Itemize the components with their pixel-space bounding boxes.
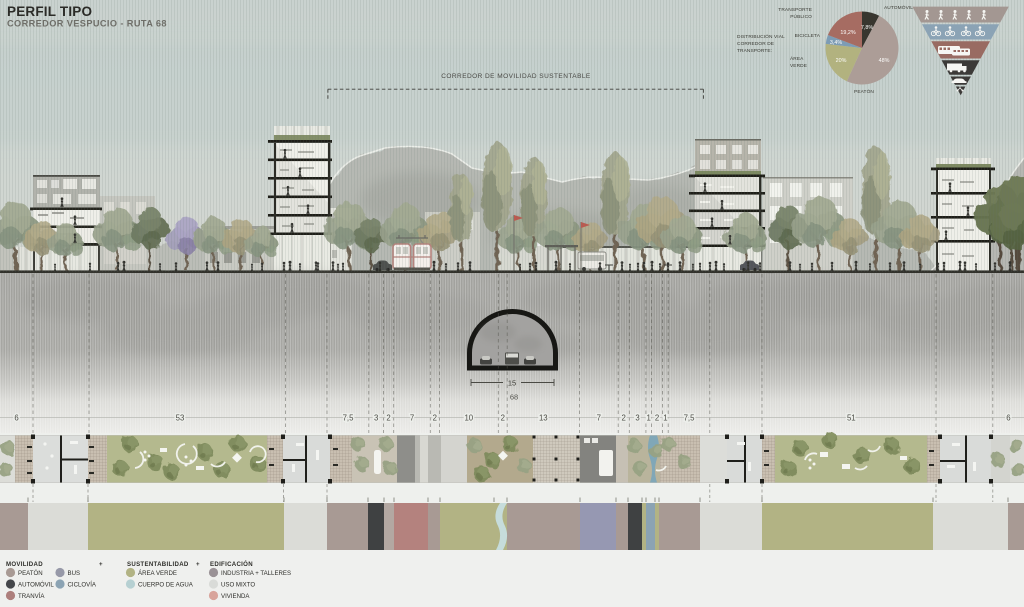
- svg-text:CORREDOR DE: CORREDOR DE: [737, 41, 774, 47]
- svg-text:ÁREA VERDE: ÁREA VERDE: [138, 570, 177, 577]
- svg-text:SUSTENTABILIDAD: SUSTENTABILIDAD: [127, 561, 189, 568]
- svg-text:51: 51: [847, 414, 856, 423]
- svg-text:15: 15: [508, 379, 516, 388]
- svg-text:CORREDOR VESPUCIO - RUTA 68: CORREDOR VESPUCIO - RUTA 68: [7, 19, 167, 29]
- svg-text:DISTRIBUCIÓN VIAL: DISTRIBUCIÓN VIAL: [737, 33, 785, 40]
- svg-text:7: 7: [410, 414, 414, 423]
- svg-text:PEATÓN: PEATÓN: [18, 570, 43, 577]
- svg-text:BICICLETA: BICICLETA: [795, 33, 821, 39]
- svg-text:EDIFICACIÓN: EDIFICACIÓN: [210, 560, 253, 568]
- svg-text:BUS: BUS: [68, 570, 81, 577]
- svg-text:48%: 48%: [879, 58, 890, 64]
- svg-text:6: 6: [1006, 414, 1010, 423]
- svg-text:CUERPO DE AGUA: CUERPO DE AGUA: [138, 582, 194, 589]
- svg-text:VIVIENDA: VIVIENDA: [221, 593, 250, 600]
- svg-text:7,5: 7,5: [684, 414, 696, 423]
- svg-text:PEATÓN: PEATÓN: [854, 88, 874, 95]
- svg-text:MOVILIDAD: MOVILIDAD: [6, 561, 43, 568]
- svg-text:2: 2: [655, 414, 659, 423]
- svg-text:PÚBLICO: PÚBLICO: [790, 13, 812, 20]
- svg-text:INDUSTRIA + TALLERES: INDUSTRIA + TALLERES: [221, 570, 291, 577]
- svg-text:19,2%: 19,2%: [840, 30, 855, 36]
- svg-text:68: 68: [510, 393, 518, 402]
- svg-text:2: 2: [386, 414, 390, 423]
- svg-text:CORREDOR DE MOVILIDAD SUSTENTA: CORREDOR DE MOVILIDAD SUSTENTABLE: [441, 73, 591, 80]
- svg-text:7,5: 7,5: [343, 414, 355, 423]
- svg-text:TRANSPORTE: TRANSPORTE: [778, 7, 812, 13]
- svg-text:2: 2: [433, 414, 437, 423]
- svg-text:1: 1: [647, 414, 651, 423]
- svg-text:2: 2: [622, 414, 626, 423]
- svg-text:CICLOVÍA: CICLOVÍA: [68, 582, 97, 589]
- svg-text:3: 3: [635, 414, 639, 423]
- svg-text:1: 1: [663, 414, 667, 423]
- svg-text:TRANVÍA: TRANVÍA: [18, 593, 45, 600]
- svg-text:3: 3: [374, 414, 378, 423]
- svg-text:2: 2: [501, 414, 505, 423]
- svg-text:7,8%: 7,8%: [861, 25, 873, 31]
- svg-text:PERFIL TIPO: PERFIL TIPO: [7, 4, 92, 19]
- svg-text:6: 6: [14, 414, 18, 423]
- svg-text:VERDE: VERDE: [790, 63, 807, 69]
- svg-text:53: 53: [176, 414, 185, 423]
- svg-text:7: 7: [597, 414, 601, 423]
- svg-text:13: 13: [539, 414, 548, 423]
- svg-text:+: +: [99, 561, 103, 568]
- svg-text:10: 10: [464, 414, 473, 423]
- svg-text:3,4%: 3,4%: [830, 40, 842, 46]
- svg-text:20%: 20%: [836, 58, 847, 64]
- svg-text:AUTOMÓVIL: AUTOMÓVIL: [18, 582, 54, 589]
- svg-text:ÁREA: ÁREA: [790, 55, 804, 62]
- svg-text:+: +: [196, 561, 200, 568]
- svg-text:USO MIXTO: USO MIXTO: [221, 582, 255, 589]
- svg-text:TRANSPORTE:: TRANSPORTE:: [737, 48, 772, 54]
- svg-text:AUTOMÓVIL.: AUTOMÓVIL.: [884, 4, 915, 11]
